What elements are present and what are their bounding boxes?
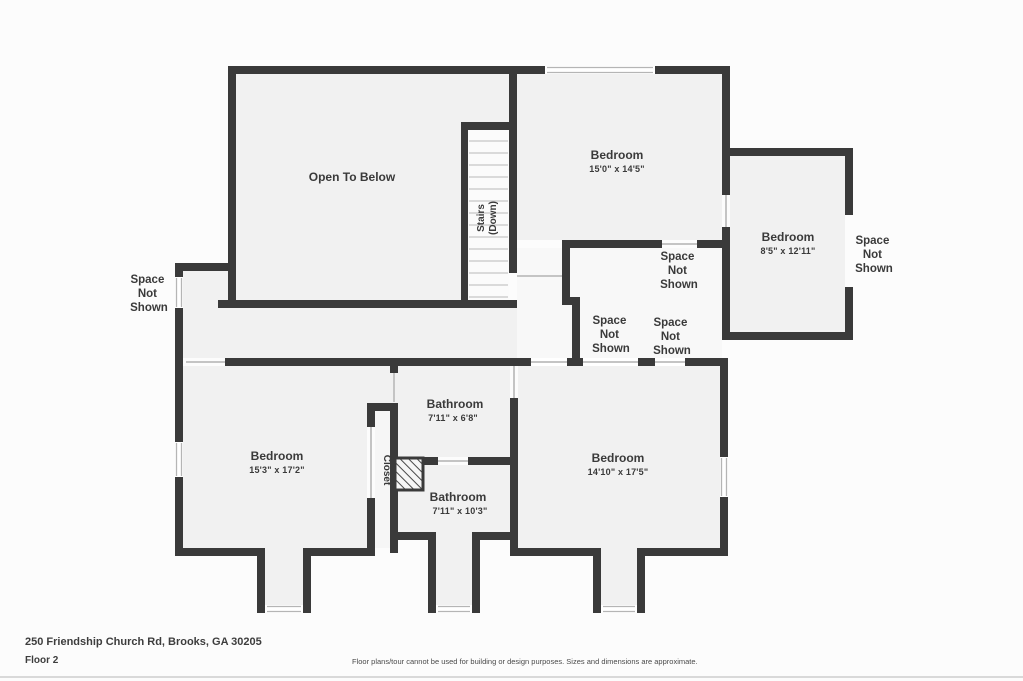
window-bedroom-3-dormer bbox=[265, 605, 303, 613]
room-bathroom-1-floor bbox=[398, 366, 510, 457]
window-bedroom-4-dormer bbox=[601, 605, 637, 613]
label-stairs-line2: (Down) bbox=[488, 201, 499, 235]
window-bathroom-2-dormer bbox=[436, 605, 472, 613]
footer-divider-line bbox=[0, 676, 1023, 678]
room-bathroom-2-dormer-floor bbox=[436, 532, 472, 605]
label-space-not-shown-left: Space Not Shown bbox=[130, 274, 168, 314]
label-stairs-line1: Stairs bbox=[476, 204, 487, 232]
label-bathroom-1-dims: 7'11" x 6'8" bbox=[428, 413, 478, 423]
room-bedroom-3-dormer-floor bbox=[265, 548, 303, 605]
label-bedroom-4-name: Bedroom bbox=[592, 451, 645, 465]
room-bedroom-2-floor bbox=[730, 156, 845, 332]
label-open-to-below: Open To Below bbox=[309, 170, 396, 184]
label-bathroom-1-name: Bathroom bbox=[427, 397, 484, 411]
chimney-hatch bbox=[395, 458, 423, 490]
floor-plan-page: Open To Below Stairs (Down) Bedroom 15'0… bbox=[0, 0, 1023, 681]
label-space-not-shown-right: Space Not Shown bbox=[855, 235, 893, 275]
space-not-shown-middle-floor bbox=[517, 248, 722, 358]
hallway-floor bbox=[183, 308, 572, 358]
window-left-lower bbox=[175, 442, 183, 477]
room-bedroom-4-dormer-floor bbox=[601, 548, 637, 605]
window-left-upper bbox=[175, 277, 183, 308]
label-bedroom-4-dims: 14'10" x 17'5" bbox=[588, 467, 649, 477]
footer-disclaimer: Floor plans/tour cannot be used for buil… bbox=[352, 657, 698, 666]
footer-floor-label: Floor 2 bbox=[25, 655, 58, 666]
window-top bbox=[545, 66, 655, 74]
label-bedroom-1-dims: 15'0" x 14'5" bbox=[589, 164, 644, 174]
label-bathroom-2-name: Bathroom bbox=[430, 490, 487, 504]
label-closet: Closet bbox=[381, 455, 392, 486]
label-bedroom-2-name: Bedroom bbox=[762, 230, 815, 244]
label-bedroom-1-name: Bedroom bbox=[591, 148, 644, 162]
label-bathroom-2-dims: 7'11" x 10'3" bbox=[433, 506, 488, 516]
label-bedroom-3-dims: 15'3" x 17'2" bbox=[249, 465, 304, 475]
window-bedroom-4-right bbox=[720, 457, 728, 497]
floor-plan-canvas: Open To Below Stairs (Down) Bedroom 15'0… bbox=[0, 0, 1023, 681]
label-bedroom-3-name: Bedroom bbox=[251, 449, 304, 463]
label-bedroom-2-dims: 8'5" x 12'11" bbox=[761, 246, 816, 256]
footer-address: 250 Friendship Church Rd, Brooks, GA 302… bbox=[25, 636, 262, 648]
